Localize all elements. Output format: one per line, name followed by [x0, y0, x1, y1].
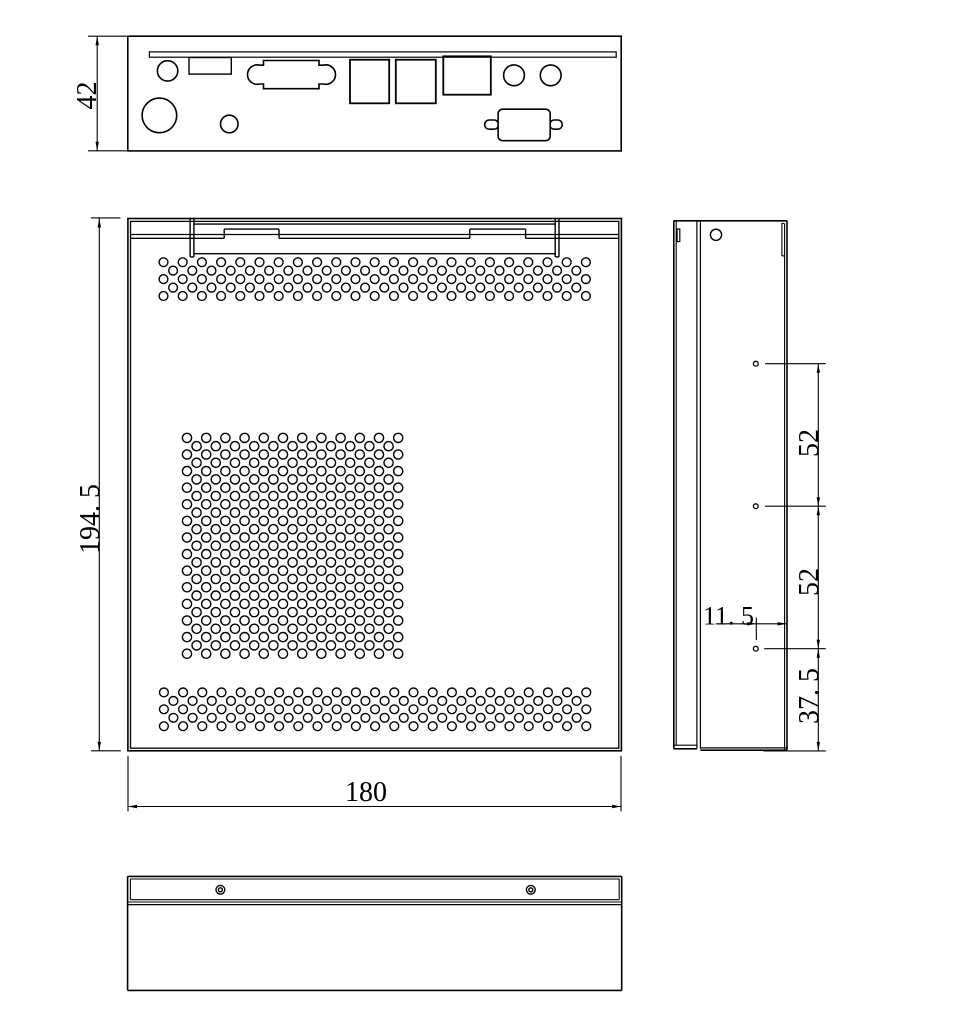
svg-text:11. 5: 11. 5 — [703, 602, 754, 631]
svg-text:37. 5: 37. 5 — [794, 668, 825, 724]
svg-text:52: 52 — [794, 568, 825, 596]
svg-text:180: 180 — [345, 777, 387, 808]
svg-text:194. 5: 194. 5 — [75, 484, 106, 554]
svg-text:52: 52 — [794, 429, 825, 457]
svg-text:42: 42 — [72, 82, 103, 110]
